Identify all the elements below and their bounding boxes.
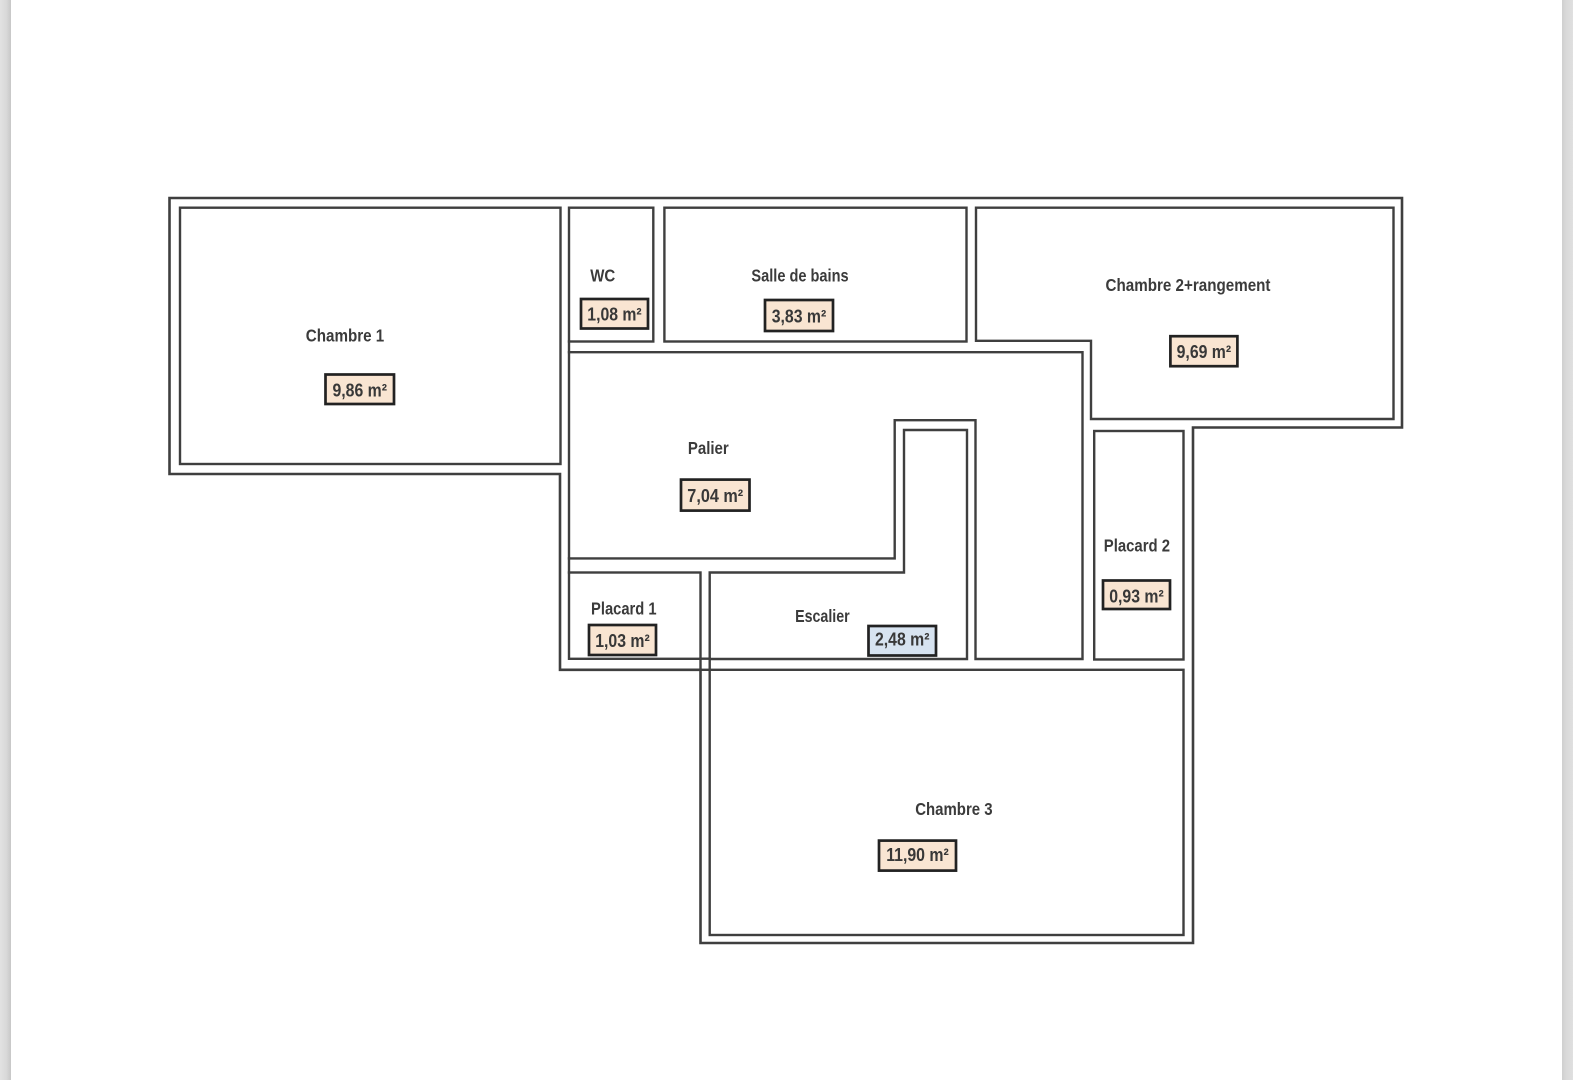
svg-text:1,08 m²: 1,08 m²	[587, 305, 641, 325]
svg-text:Chambre 3: Chambre 3	[915, 799, 993, 819]
svg-text:Chambre 2+rangement: Chambre 2+rangement	[1106, 275, 1271, 295]
svg-text:Chambre 1: Chambre 1	[306, 326, 385, 346]
svg-text:1,03 m²: 1,03 m²	[595, 631, 650, 651]
svg-text:Placard 2: Placard 2	[1104, 536, 1170, 556]
svg-text:Escalier: Escalier	[795, 606, 850, 626]
svg-text:7,04 m²: 7,04 m²	[687, 486, 743, 506]
svg-text:9,86 m²: 9,86 m²	[333, 381, 388, 401]
svg-text:Placard 1: Placard 1	[591, 598, 657, 618]
svg-text:2,48 m²: 2,48 m²	[875, 630, 930, 650]
svg-text:Palier: Palier	[688, 438, 729, 458]
svg-text:9,69 m²: 9,69 m²	[1177, 342, 1232, 362]
svg-text:11,90 m²: 11,90 m²	[886, 845, 949, 865]
svg-text:Salle de bains: Salle de bains	[751, 266, 848, 286]
svg-text:WC: WC	[590, 266, 615, 286]
svg-text:3,83 m²: 3,83 m²	[772, 307, 827, 327]
svg-text:0,93 m²: 0,93 m²	[1109, 587, 1164, 607]
